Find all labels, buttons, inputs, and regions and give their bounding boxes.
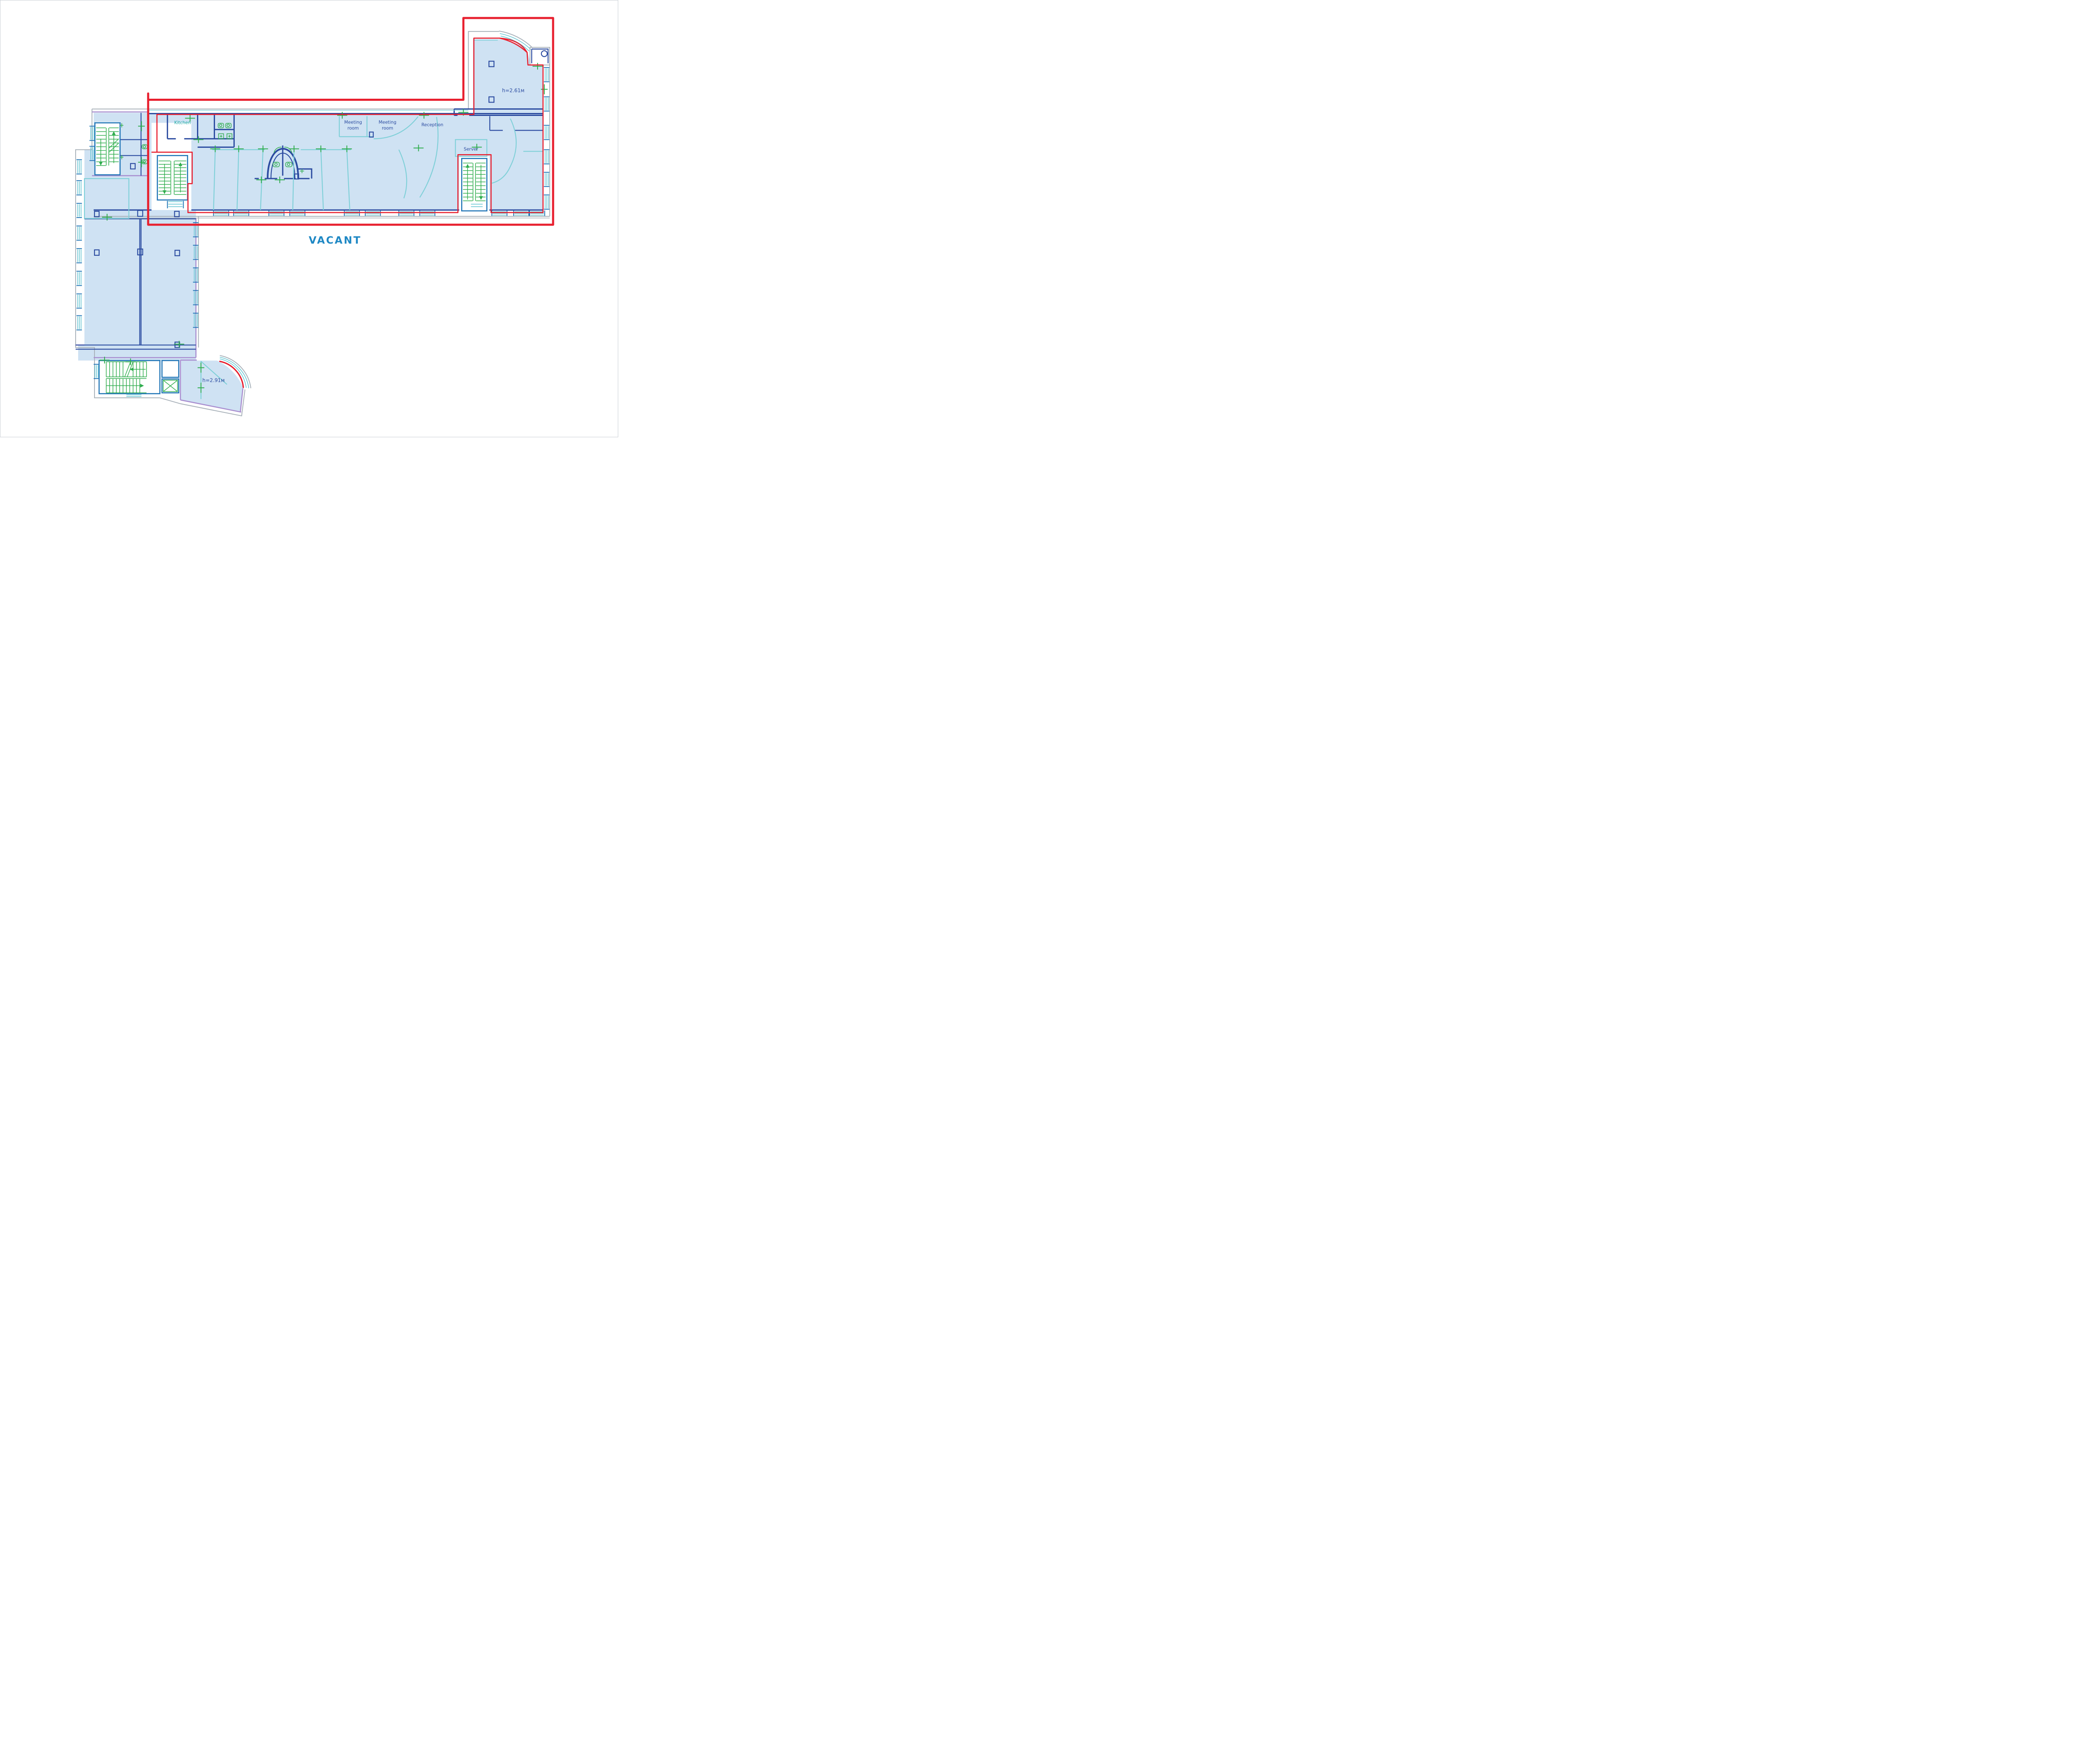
floor-plan-canvas: VACANT Kitchen Meeting room Meeting room…	[0, 0, 618, 437]
label-meeting-room-1-line1: Meeting	[344, 120, 362, 125]
label-ceiling-height-lower: h=2.91м	[202, 377, 225, 383]
label-meeting-room-2-line2: room	[382, 126, 393, 131]
vacant-label: VACANT	[309, 234, 362, 246]
label-reception: Reception	[421, 122, 443, 127]
label-meeting-room-1-line2: room	[347, 126, 359, 131]
label-server: Server	[464, 147, 478, 152]
label-ceiling-height-upper: h=2.61м	[502, 88, 524, 94]
elevator-shafts	[162, 360, 179, 393]
floor-plan-page: VACANT Kitchen Meeting room Meeting room…	[0, 0, 618, 437]
label-kitchen: Kitchen	[174, 120, 191, 125]
label-meeting-room-2-line1: Meeting	[379, 120, 396, 125]
